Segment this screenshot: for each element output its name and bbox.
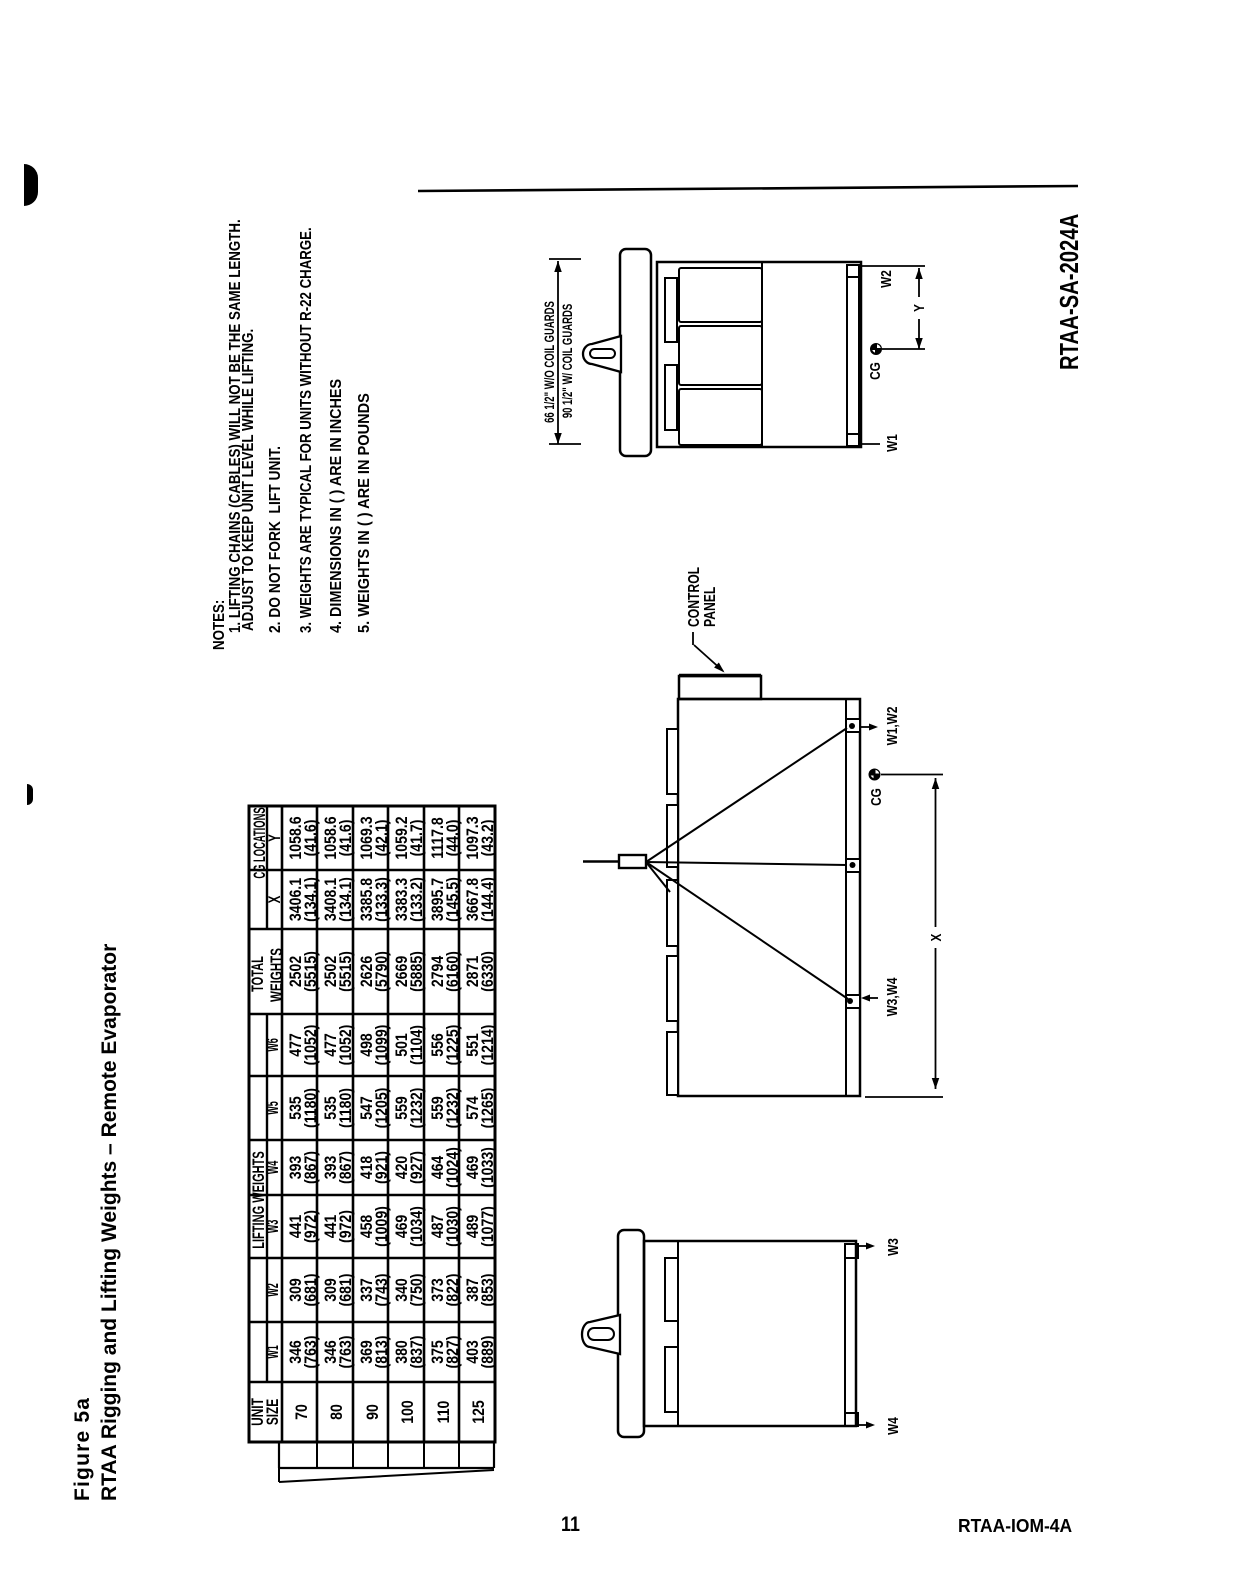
svg-text:66 1/2" W/O COIL GUARDS: 66 1/2" W/O COIL GUARDS bbox=[541, 301, 557, 423]
svg-text:(1214): (1214) bbox=[479, 1025, 497, 1066]
svg-text:(1232): (1232) bbox=[408, 1088, 426, 1129]
svg-text:W5: W5 bbox=[263, 1101, 282, 1115]
svg-text:90 1/2" W/ COIL GUARDS: 90 1/2" W/ COIL GUARDS bbox=[559, 304, 575, 418]
svg-text:(972): (972) bbox=[337, 1210, 355, 1243]
svg-text:(5515): (5515) bbox=[302, 951, 320, 992]
svg-text:W1,W2: W1,W2 bbox=[884, 707, 901, 746]
svg-text:(41.6): (41.6) bbox=[302, 820, 320, 857]
svg-text:(763): (763) bbox=[302, 1336, 320, 1369]
svg-text:W1: W1 bbox=[263, 1345, 282, 1359]
svg-text:110: 110 bbox=[435, 1400, 453, 1423]
svg-text:W3: W3 bbox=[263, 1220, 282, 1234]
svg-text:(827): (827) bbox=[444, 1336, 462, 1369]
svg-text:SIZE: SIZE bbox=[264, 1398, 282, 1425]
svg-text:(1034): (1034) bbox=[408, 1206, 426, 1247]
svg-text:PANEL: PANEL bbox=[701, 586, 719, 627]
svg-text:(743): (743) bbox=[373, 1274, 391, 1307]
svg-text:(1033): (1033) bbox=[479, 1147, 497, 1188]
svg-text:(763): (763) bbox=[337, 1336, 355, 1369]
svg-text:(1104): (1104) bbox=[408, 1025, 426, 1065]
svg-text:W3: W3 bbox=[885, 1238, 902, 1256]
svg-text:(43.2): (43.2) bbox=[479, 820, 497, 857]
svg-text:W4: W4 bbox=[263, 1160, 282, 1174]
svg-text:(42.1): (42.1) bbox=[373, 820, 391, 857]
svg-text:W1: W1 bbox=[884, 434, 901, 452]
svg-text:(1180): (1180) bbox=[337, 1088, 355, 1128]
svg-text:(927): (927) bbox=[408, 1151, 426, 1184]
svg-text:W3,W4: W3,W4 bbox=[884, 977, 901, 1016]
svg-text:70: 70 bbox=[293, 1404, 311, 1420]
svg-text:X: X bbox=[928, 934, 945, 942]
svg-text:(44.0): (44.0) bbox=[444, 820, 462, 857]
svg-text:125: 125 bbox=[470, 1400, 488, 1424]
svg-text:(6160): (6160) bbox=[444, 951, 462, 992]
svg-text:(837): (837) bbox=[408, 1336, 426, 1369]
svg-text:(145.5): (145.5) bbox=[444, 877, 462, 922]
svg-text:100: 100 bbox=[399, 1400, 417, 1424]
svg-text:(134.1): (134.1) bbox=[302, 877, 320, 922]
svg-text:(133.3): (133.3) bbox=[373, 877, 391, 922]
svg-text:WEIGHTS: WEIGHTS bbox=[268, 948, 287, 1002]
svg-text:(681): (681) bbox=[337, 1274, 355, 1307]
svg-text:TOTAL: TOTAL bbox=[248, 956, 267, 992]
svg-text:90: 90 bbox=[364, 1404, 382, 1420]
svg-text:(889): (889) bbox=[479, 1336, 497, 1369]
svg-text:(813): (813) bbox=[373, 1336, 391, 1369]
svg-text:(1225): (1225) bbox=[444, 1025, 462, 1066]
svg-text:(867): (867) bbox=[302, 1151, 320, 1184]
svg-text:(41.7): (41.7) bbox=[408, 820, 426, 857]
svg-text:(867): (867) bbox=[337, 1151, 355, 1184]
svg-text:(1180): (1180) bbox=[302, 1088, 320, 1128]
svg-text:W2: W2 bbox=[878, 270, 895, 288]
svg-text:(822): (822) bbox=[444, 1274, 462, 1307]
svg-text:(681): (681) bbox=[302, 1274, 320, 1307]
svg-text:Y: Y bbox=[266, 834, 285, 842]
svg-text:(1052): (1052) bbox=[337, 1025, 355, 1066]
svg-text:CG: CG bbox=[867, 362, 884, 380]
svg-text:(6330): (6330) bbox=[479, 951, 497, 992]
svg-text:(5515): (5515) bbox=[337, 951, 355, 992]
svg-text:CG: CG bbox=[868, 788, 885, 806]
svg-text:(134.1): (134.1) bbox=[337, 877, 355, 922]
svg-text:(1265): (1265) bbox=[479, 1088, 497, 1129]
svg-text:W4: W4 bbox=[885, 1417, 902, 1435]
svg-text:(1024): (1024) bbox=[444, 1147, 462, 1188]
svg-text:(1099): (1099) bbox=[373, 1025, 391, 1066]
svg-text:(1030): (1030) bbox=[444, 1206, 462, 1247]
svg-text:(1205): (1205) bbox=[373, 1088, 391, 1129]
svg-text:80: 80 bbox=[328, 1404, 346, 1420]
svg-text:(921): (921) bbox=[373, 1151, 391, 1184]
svg-text:(5885): (5885) bbox=[408, 951, 426, 992]
svg-text:(41.6): (41.6) bbox=[337, 820, 355, 857]
svg-text:(5790): (5790) bbox=[373, 951, 391, 992]
svg-text:(1009): (1009) bbox=[373, 1206, 391, 1247]
svg-text:X: X bbox=[266, 895, 285, 903]
svg-text:(1077): (1077) bbox=[479, 1206, 497, 1247]
svg-text:(1232): (1232) bbox=[444, 1088, 462, 1129]
svg-text:W6: W6 bbox=[263, 1038, 282, 1052]
svg-text:(1052): (1052) bbox=[302, 1025, 320, 1066]
svg-text:(853): (853) bbox=[479, 1274, 497, 1307]
svg-text:(750): (750) bbox=[408, 1274, 426, 1307]
svg-text:(133.2): (133.2) bbox=[408, 877, 426, 922]
svg-text:Y: Y bbox=[911, 304, 928, 312]
svg-text:(144.4): (144.4) bbox=[479, 877, 497, 922]
svg-text:W2: W2 bbox=[263, 1283, 282, 1297]
svg-text:CG LOCATIONS: CG LOCATIONS bbox=[250, 807, 268, 878]
svg-text:(972): (972) bbox=[302, 1210, 320, 1243]
